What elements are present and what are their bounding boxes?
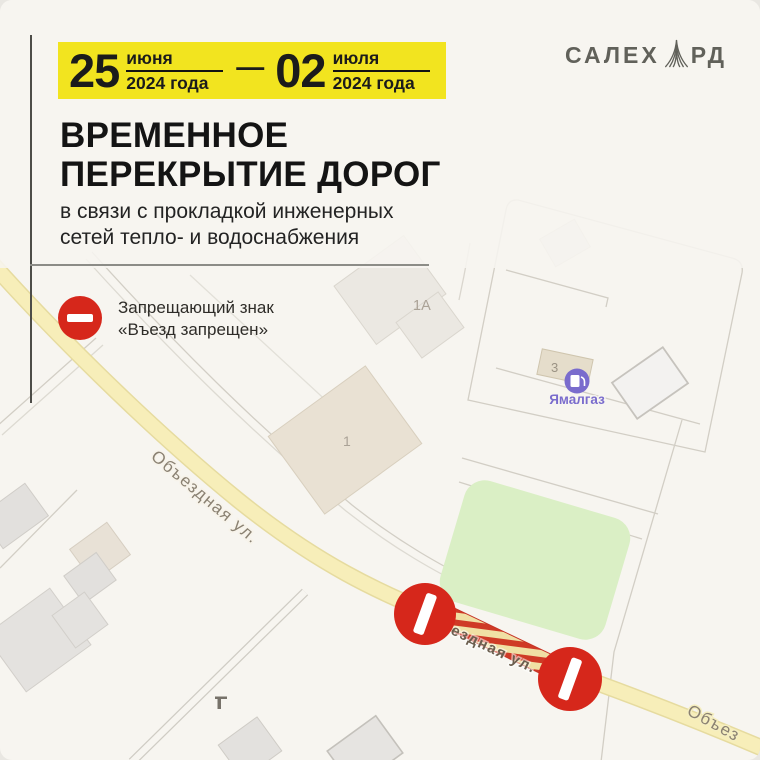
legend: Запрещающий знак «Въезд запрещен»	[58, 296, 274, 342]
poster-title-line2: ПЕРЕКРЫТИЕ ДОРОГ	[60, 155, 441, 194]
start-year: 2024 года	[126, 74, 223, 92]
poster-card: 1А 1 3 Объездная ул. ездная ул. Объез	[0, 0, 760, 760]
end-day: 02	[275, 47, 325, 94]
end-month: июля	[333, 49, 430, 67]
road-minor	[132, 592, 305, 760]
no-entry-sign-legend-icon	[58, 296, 102, 340]
date-banner: 25 июня 2024 года — 02 июля 2024 года	[58, 42, 446, 99]
start-underline	[126, 70, 223, 72]
date-separator: —	[236, 51, 264, 83]
no-entry-sign-1	[394, 583, 456, 645]
poster-title: ВРЕМЕННОЕ ПЕРЕКРЫТИЕ ДОРОГ	[60, 117, 520, 194]
city-logo: САЛЕХ РД	[565, 39, 727, 71]
end-date-stack: июля 2024 года	[333, 49, 430, 92]
poster-subtitle: в связи с прокладкой инженерных сетей те…	[60, 199, 520, 251]
divider-line	[30, 264, 429, 266]
legend-label-line2: «Въезд запрещен»	[118, 320, 268, 339]
end-underline	[333, 70, 430, 72]
poster-title-line1: ВРЕМЕННОЕ	[60, 116, 288, 155]
logo-text-left: САЛЕХ	[565, 42, 660, 69]
pole-icon	[215, 697, 227, 710]
title-block: ВРЕМЕННОЕ ПЕРЕКРЫТИЕ ДОРОГ в связи с про…	[60, 117, 520, 251]
map: 1А 1 3 Объездная ул. ездная ул. Объез	[0, 0, 760, 760]
building-1-label: 1	[343, 433, 351, 449]
left-accent-line	[30, 35, 32, 403]
monument-icon	[663, 39, 690, 69]
start-date-stack: июня 2024 года	[126, 49, 223, 92]
building-1a-label: 1А	[413, 298, 431, 314]
start-day: 25	[69, 47, 119, 94]
legend-label-line1: Запрещающий знак	[118, 298, 274, 317]
gas-station-label: Ямалгаз	[549, 392, 605, 407]
no-entry-bar	[67, 314, 93, 322]
poster-subtitle-line2: сетей тепло- и водоснабжения	[60, 226, 359, 249]
gas-station-icon	[565, 369, 590, 394]
logo-text-right: РД	[691, 42, 727, 69]
building-3-label: 3	[551, 360, 558, 375]
end-year: 2024 года	[333, 74, 430, 92]
poster-subtitle-line1: в связи с прокладкой инженерных	[60, 200, 394, 223]
start-month: июня	[126, 49, 223, 67]
no-entry-sign-2	[538, 647, 602, 711]
legend-label: Запрещающий знак «Въезд запрещен»	[118, 296, 274, 342]
